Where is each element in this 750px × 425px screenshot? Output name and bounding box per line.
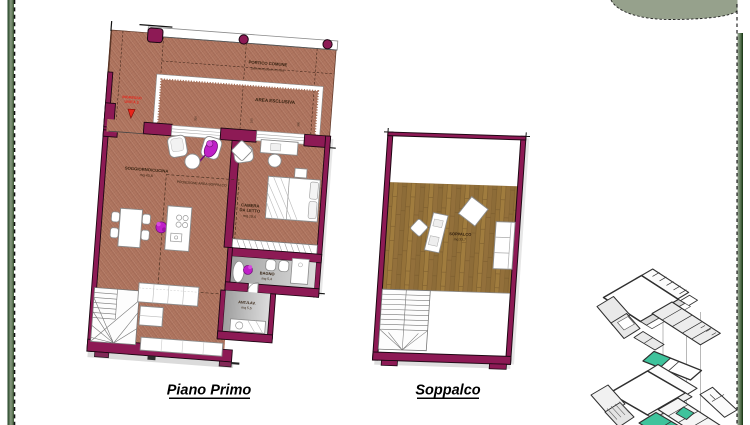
- svg-text:350: 350: [193, 116, 197, 122]
- svg-text:160: 160: [249, 118, 253, 124]
- svg-text:SOPPALCO: SOPPALCO: [449, 231, 471, 237]
- svg-text:380: 380: [296, 121, 300, 127]
- svg-text:Soppalco: Soppalco: [415, 383, 480, 399]
- svg-text:Piano Primo: Piano Primo: [167, 383, 252, 399]
- svg-text:mq 5,4: mq 5,4: [261, 276, 272, 281]
- svg-text:mq 33,7: mq 33,7: [454, 237, 467, 241]
- svg-text:mq 5,5: mq 5,5: [241, 306, 252, 311]
